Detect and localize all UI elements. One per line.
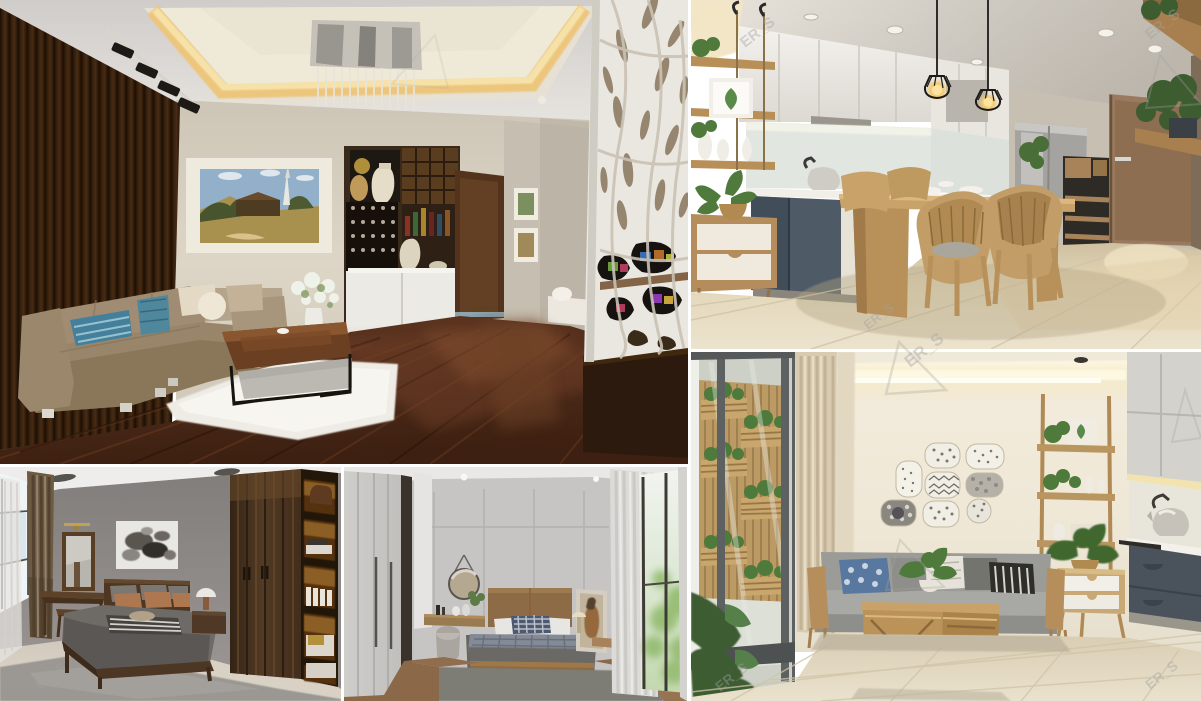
svg-text:ER_S: ER_S xyxy=(1142,657,1181,692)
svg-text:ER_S: ER_S xyxy=(901,329,948,371)
svg-text:ER_S: ER_S xyxy=(861,299,897,332)
svg-text:ER_S: ER_S xyxy=(712,659,751,694)
svg-text:ER_S: ER_S xyxy=(33,659,69,692)
svg-text:ER_S: ER_S xyxy=(1142,6,1183,44)
svg-text:ER_S: ER_S xyxy=(737,14,778,52)
